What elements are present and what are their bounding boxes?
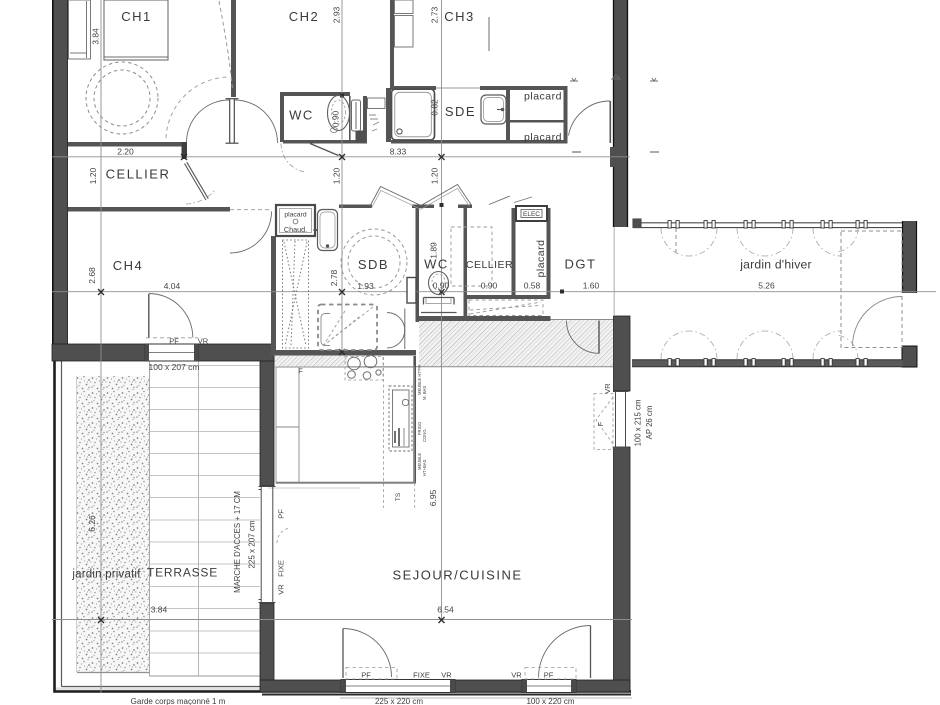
svg-text:PF: PF bbox=[169, 337, 179, 346]
svg-text:100 x 220 cm: 100 x 220 cm bbox=[526, 697, 574, 705]
svg-text:8.33: 8.33 bbox=[390, 147, 407, 157]
svg-text:ELEC: ELEC bbox=[523, 211, 540, 218]
svg-text:2.78: 2.78 bbox=[329, 269, 339, 286]
svg-text:0.90: 0.90 bbox=[481, 281, 498, 291]
svg-text:2.73: 2.73 bbox=[430, 6, 440, 23]
svg-text:PF: PF bbox=[361, 671, 371, 680]
svg-text:Garde corps maçonné 1 m: Garde corps maçonné 1 m bbox=[131, 697, 226, 705]
svg-text:TS: TS bbox=[395, 492, 402, 501]
svg-text:VR: VR bbox=[441, 671, 452, 680]
svg-text:DGT: DGT bbox=[565, 257, 597, 272]
svg-text:placard: placard bbox=[524, 91, 562, 103]
svg-text:FIXE: FIXE bbox=[413, 671, 430, 680]
svg-text:6.54: 6.54 bbox=[437, 605, 454, 615]
svg-text:1.20: 1.20 bbox=[88, 167, 98, 184]
svg-text:Chaud.: Chaud. bbox=[284, 225, 307, 234]
svg-text:PF: PF bbox=[544, 671, 554, 680]
svg-text:0.90: 0.90 bbox=[331, 110, 341, 127]
svg-text:AP 26 cm: AP 26 cm bbox=[645, 406, 654, 440]
svg-text:PF: PF bbox=[277, 509, 286, 519]
svg-text:2.20: 2.20 bbox=[117, 147, 134, 157]
svg-text:CELLIER: CELLIER bbox=[466, 259, 513, 271]
svg-text:0.58: 0.58 bbox=[524, 281, 541, 291]
svg-text:4.04: 4.04 bbox=[164, 281, 181, 291]
svg-text:225 x 207 cm: 225 x 207 cm bbox=[248, 520, 257, 568]
svg-text:0.90: 0.90 bbox=[433, 281, 450, 291]
svg-text:CONG.: CONG. bbox=[422, 428, 427, 442]
svg-text:jardin privatif: jardin privatif bbox=[71, 569, 141, 581]
svg-text:placard: placard bbox=[524, 132, 562, 144]
svg-text:100 x 207 cm: 100 x 207 cm bbox=[148, 362, 199, 372]
svg-text:1.93: 1.93 bbox=[357, 281, 374, 291]
svg-text:1.60: 1.60 bbox=[583, 281, 600, 291]
svg-text:MARCHE D'ACCES + 17 CM: MARCHE D'ACCES + 17 CM bbox=[233, 491, 242, 593]
svg-text:SEJOUR/CUISINE: SEJOUR/CUISINE bbox=[392, 568, 522, 583]
svg-text:CELLIER: CELLIER bbox=[106, 167, 171, 182]
svg-text:VR: VR bbox=[511, 671, 522, 680]
svg-text:jardin d'hiver: jardin d'hiver bbox=[739, 258, 812, 272]
svg-text:2.93: 2.93 bbox=[332, 6, 342, 23]
svg-text:3.84: 3.84 bbox=[151, 605, 168, 615]
svg-text:100 x 215 cm: 100 x 215 cm bbox=[634, 400, 643, 447]
svg-text:1.20: 1.20 bbox=[430, 167, 440, 184]
svg-text:CH1: CH1 bbox=[121, 9, 152, 24]
svg-text:F: F bbox=[298, 367, 303, 376]
svg-text:CH4: CH4 bbox=[113, 258, 144, 273]
svg-text:3.84: 3.84 bbox=[91, 28, 101, 45]
svg-text:CH2: CH2 bbox=[289, 9, 320, 24]
svg-text:SDE: SDE bbox=[445, 104, 476, 119]
svg-text:M. BAS: M. BAS bbox=[422, 386, 427, 400]
svg-text:HT+BAS: HT+BAS bbox=[422, 459, 427, 476]
svg-text:0.82: 0.82 bbox=[430, 99, 440, 116]
svg-text:VR: VR bbox=[198, 337, 209, 346]
svg-text:1.89: 1.89 bbox=[429, 242, 439, 259]
svg-text:5.26: 5.26 bbox=[758, 281, 775, 291]
svg-text:2.68: 2.68 bbox=[87, 267, 97, 284]
svg-text:6.95: 6.95 bbox=[428, 489, 438, 506]
svg-text:F: F bbox=[596, 421, 605, 426]
svg-text:225 x 220 cm: 225 x 220 cm bbox=[375, 697, 423, 705]
svg-text:placard: placard bbox=[535, 240, 547, 278]
svg-text:WC: WC bbox=[289, 108, 314, 123]
svg-text:VR: VR bbox=[277, 584, 286, 595]
svg-text:VR: VR bbox=[603, 383, 612, 394]
svg-text:FIXE: FIXE bbox=[277, 560, 286, 577]
svg-text:TERRASSE: TERRASSE bbox=[147, 566, 218, 580]
svg-text:SDB: SDB bbox=[358, 257, 389, 272]
svg-text:placard: placard bbox=[284, 212, 307, 219]
svg-text:CH3: CH3 bbox=[444, 9, 475, 24]
svg-text:vvv: vvv bbox=[417, 364, 422, 371]
svg-text:1.20: 1.20 bbox=[332, 167, 342, 184]
svg-text:6.26: 6.26 bbox=[87, 515, 97, 532]
